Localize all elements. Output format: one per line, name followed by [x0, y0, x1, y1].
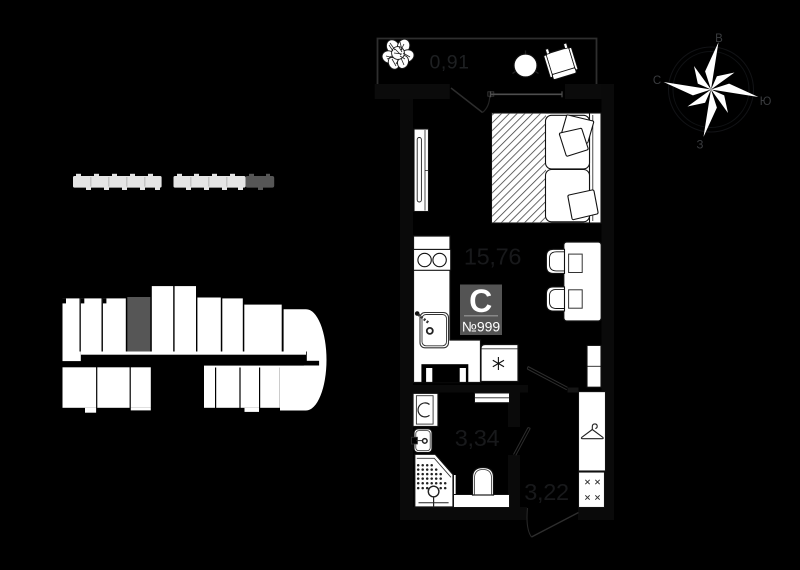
svg-text:0,91: 0,91	[430, 52, 470, 74]
svg-text:15,76: 15,76	[464, 244, 522, 270]
svg-text:C: C	[469, 283, 492, 319]
svg-text:З: З	[697, 140, 704, 152]
svg-text:3,34: 3,34	[455, 425, 500, 451]
svg-text:Ю: Ю	[760, 96, 772, 108]
svg-text:№999: №999	[462, 319, 501, 335]
svg-text:3,22: 3,22	[524, 479, 569, 505]
svg-text:В: В	[715, 33, 723, 45]
svg-text:С: С	[653, 75, 661, 87]
